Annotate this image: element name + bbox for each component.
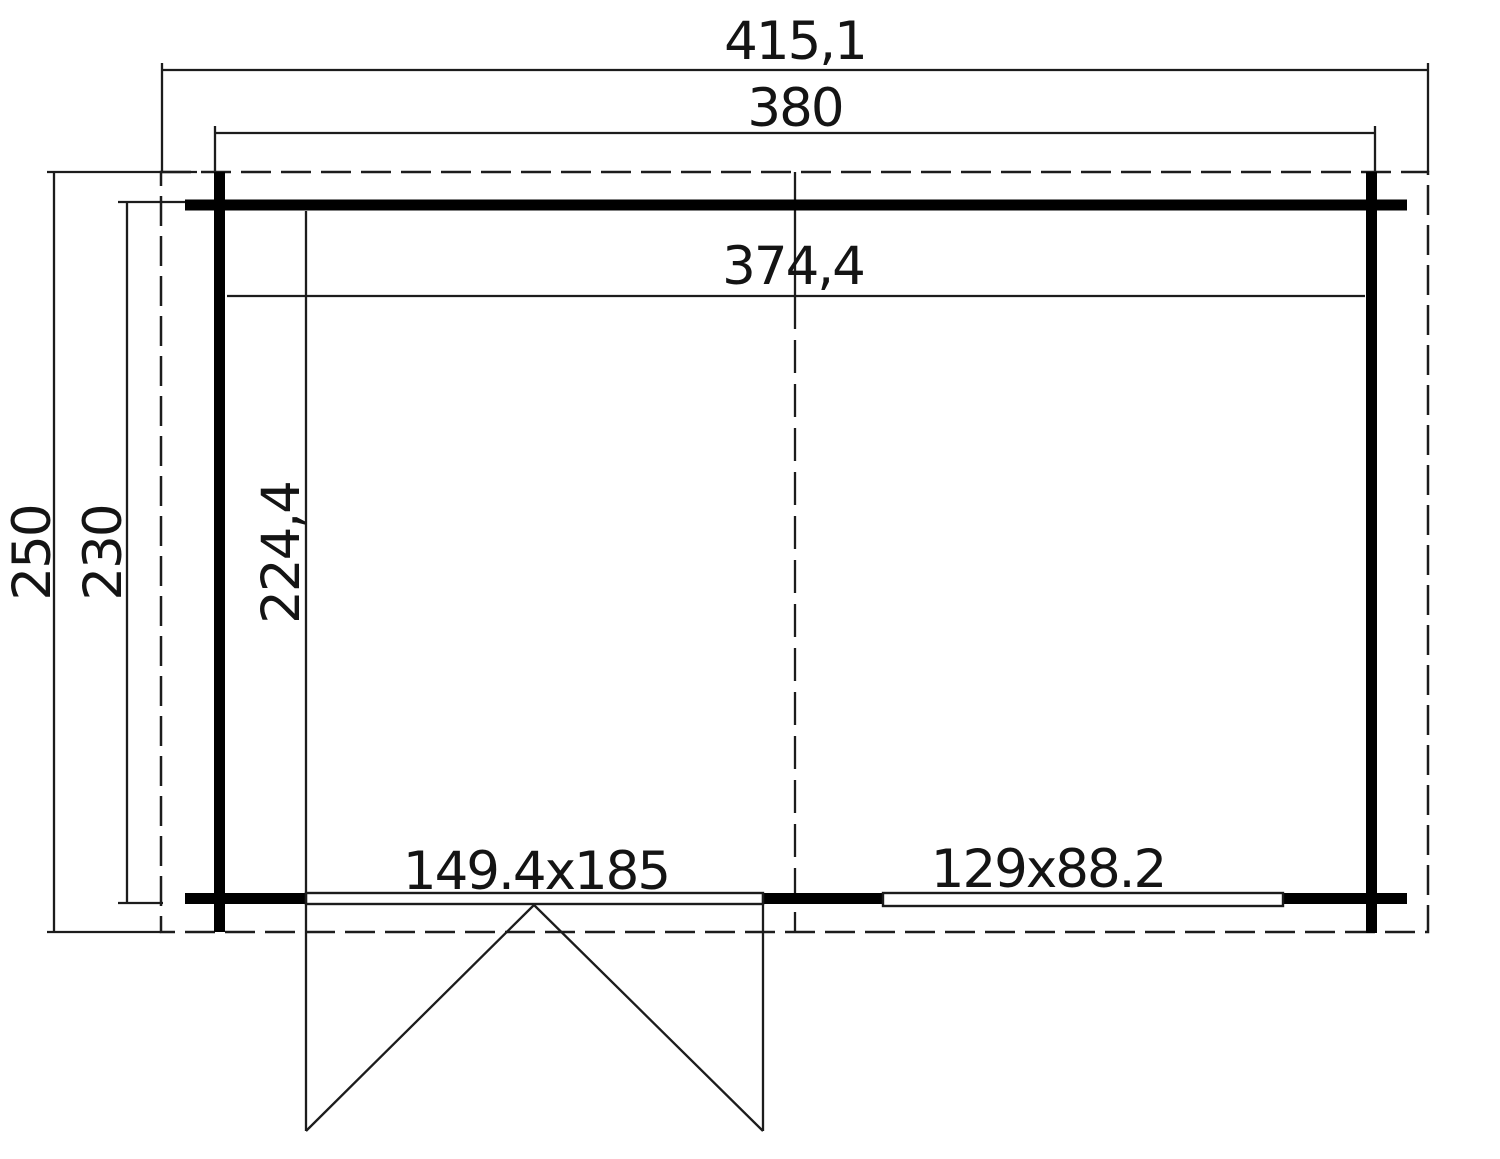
floor-plan-drawing: 415,1 380 374,4 250 230 224,4 149.4x185 … xyxy=(0,0,1500,1159)
door-assembly xyxy=(306,893,763,1131)
roof-depth-label: 250 xyxy=(2,505,63,600)
roof-width-label: 415,1 xyxy=(724,11,866,72)
window-size-label: 129x88.2 xyxy=(931,839,1166,900)
inner-width-label: 374,4 xyxy=(722,236,864,297)
door-right-swing-line xyxy=(534,905,763,1131)
door-size-label: 149.4x185 xyxy=(403,841,669,902)
door-left-swing-line xyxy=(306,905,534,1131)
dimension-labels: 415,1 380 374,4 250 230 224,4 149.4x185 … xyxy=(2,11,1165,902)
outer-depth-label: 230 xyxy=(73,505,134,600)
inner-depth-label: 224,4 xyxy=(251,482,312,624)
outer-width-label: 380 xyxy=(747,78,842,139)
floor-plan-canvas: 415,1 380 374,4 250 230 224,4 149.4x185 … xyxy=(0,0,1500,1159)
